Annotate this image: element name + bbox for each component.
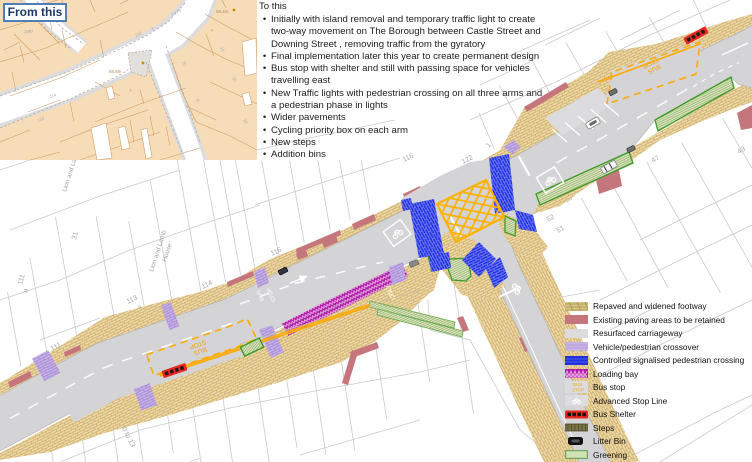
svg-text:68.8m: 68.8m bbox=[109, 69, 122, 74]
svg-text:a: a bbox=[22, 288, 30, 294]
svg-text:113: 113 bbox=[126, 294, 139, 305]
svg-text:111: 111 bbox=[17, 273, 27, 285]
svg-text:52: 52 bbox=[546, 214, 556, 224]
svg-text:68.4m: 68.4m bbox=[216, 9, 229, 14]
svg-text:STOP: STOP bbox=[572, 388, 584, 393]
svg-text:BUS: BUS bbox=[573, 382, 582, 387]
svg-text:47: 47 bbox=[651, 155, 661, 165]
svg-text:31: 31 bbox=[71, 231, 80, 240]
svg-text:43: 43 bbox=[737, 146, 747, 156]
svg-text:1897: 1897 bbox=[24, 29, 34, 34]
svg-text:51: 51 bbox=[556, 225, 566, 235]
